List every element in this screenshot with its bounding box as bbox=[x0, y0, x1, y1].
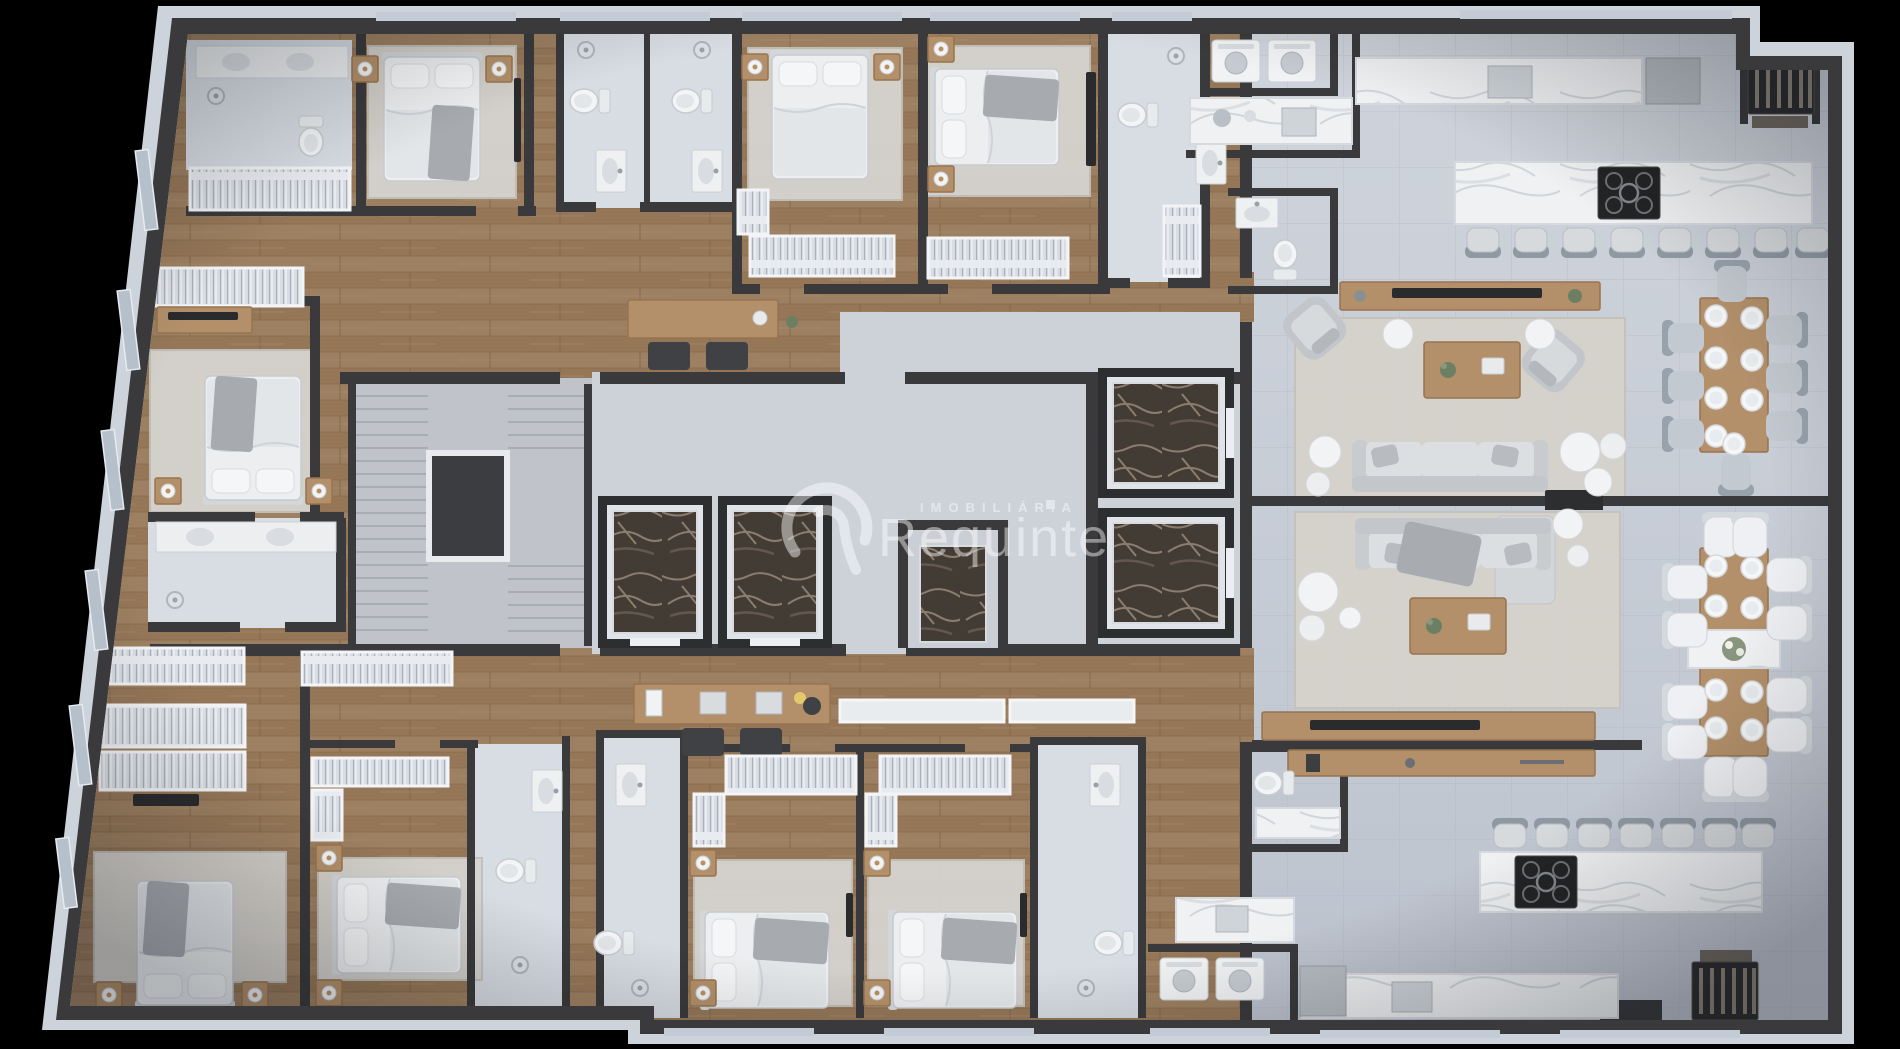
floor-plan-render: IMOBILIÁRIA Requinte bbox=[0, 0, 1900, 1049]
watermark-brand: Requinte bbox=[878, 508, 1110, 568]
floor-plan-svg: IMOBILIÁRIA Requinte bbox=[0, 0, 1900, 1049]
